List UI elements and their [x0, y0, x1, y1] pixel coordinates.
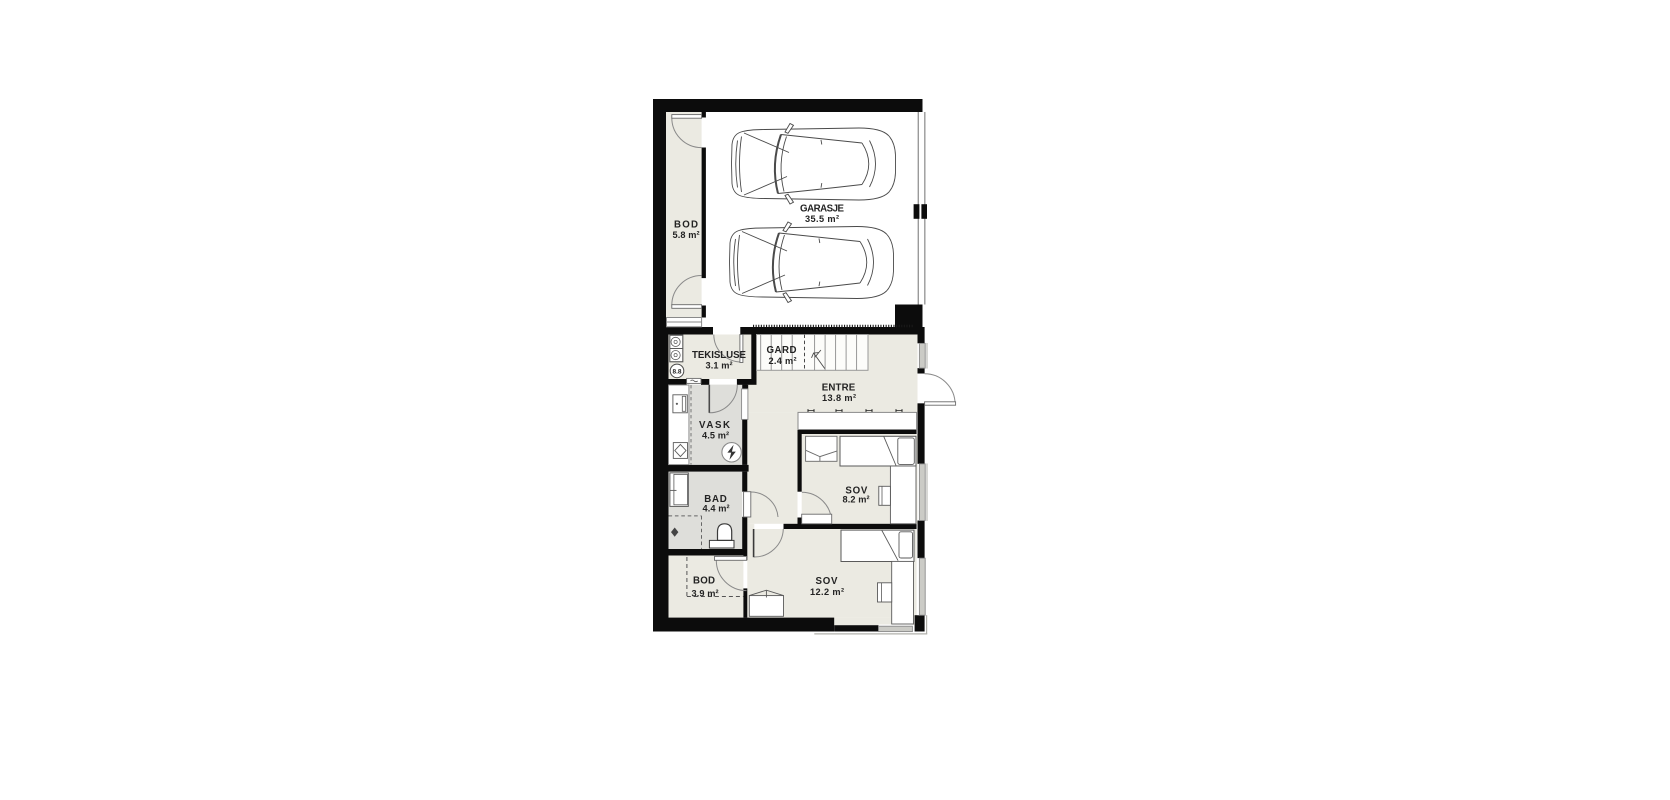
svg-text:4.4 m²: 4.4 m²: [703, 503, 730, 513]
svg-text:35.5 m²: 35.5 m²: [805, 214, 839, 224]
svg-text:ENTRE: ENTRE: [822, 383, 856, 394]
svg-text:SOV: SOV: [816, 576, 839, 587]
svg-text:8.8: 8.8: [672, 368, 681, 375]
svg-text:BOD: BOD: [674, 220, 698, 231]
svg-text:VASK: VASK: [699, 420, 730, 431]
svg-text:GARASJE: GARASJE: [800, 204, 845, 215]
svg-text:3.1 m²: 3.1 m²: [706, 360, 733, 370]
svg-text:13.8 m²: 13.8 m²: [822, 393, 856, 403]
svg-text:8.2 m²: 8.2 m²: [843, 494, 870, 504]
svg-text:5.8 m²: 5.8 m²: [673, 230, 700, 240]
svg-text:BOD: BOD: [693, 576, 715, 587]
svg-text:12.2 m²: 12.2 m²: [810, 587, 844, 597]
svg-text:3.9 m²: 3.9 m²: [692, 589, 719, 599]
svg-text:4.5 m²: 4.5 m²: [702, 431, 729, 441]
svg-text:GARD: GARD: [767, 345, 797, 356]
svg-text:2.4 m²: 2.4 m²: [769, 356, 797, 366]
